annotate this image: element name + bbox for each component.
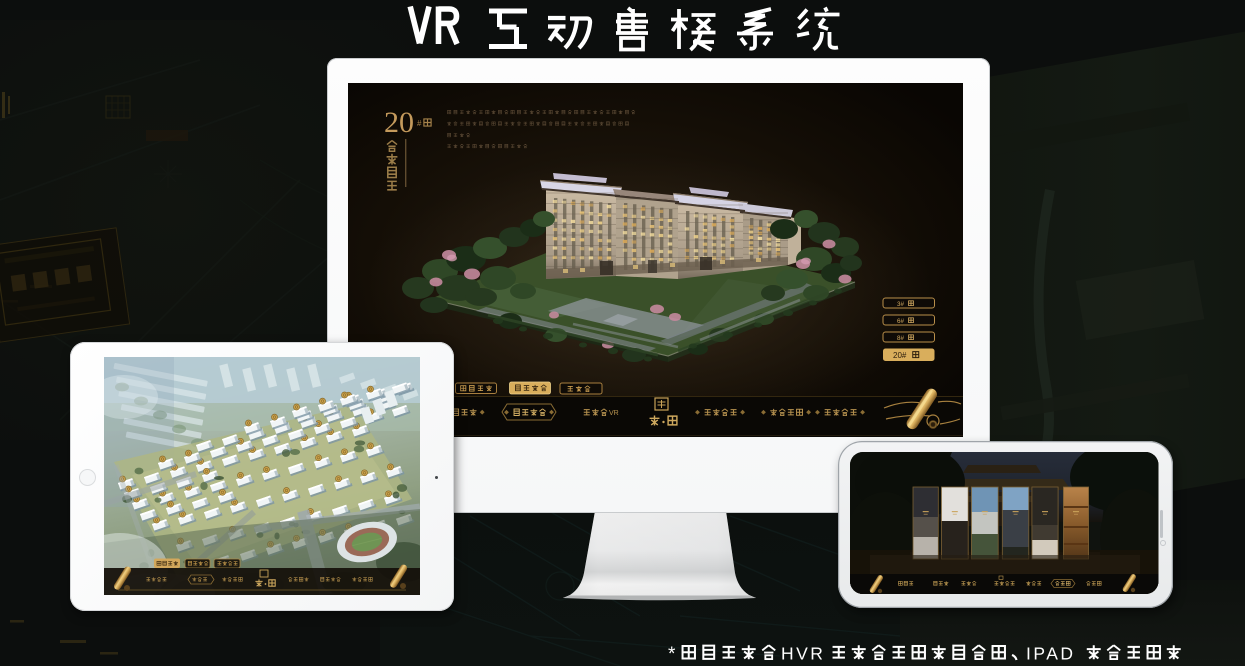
svg-text:20#: 20#: [893, 351, 907, 360]
svg-text:8#: 8#: [897, 335, 905, 342]
svg-text:#: #: [417, 119, 422, 128]
svg-text:HVR: HVR: [781, 644, 825, 664]
svg-text:IPAD: IPAD: [1026, 644, 1076, 664]
svg-text:20: 20: [384, 106, 414, 139]
svg-text:6#: 6#: [897, 318, 905, 325]
svg-text:3#: 3#: [897, 301, 905, 308]
svg-text:VR: VR: [609, 410, 619, 417]
svg-text:*: *: [668, 644, 676, 665]
